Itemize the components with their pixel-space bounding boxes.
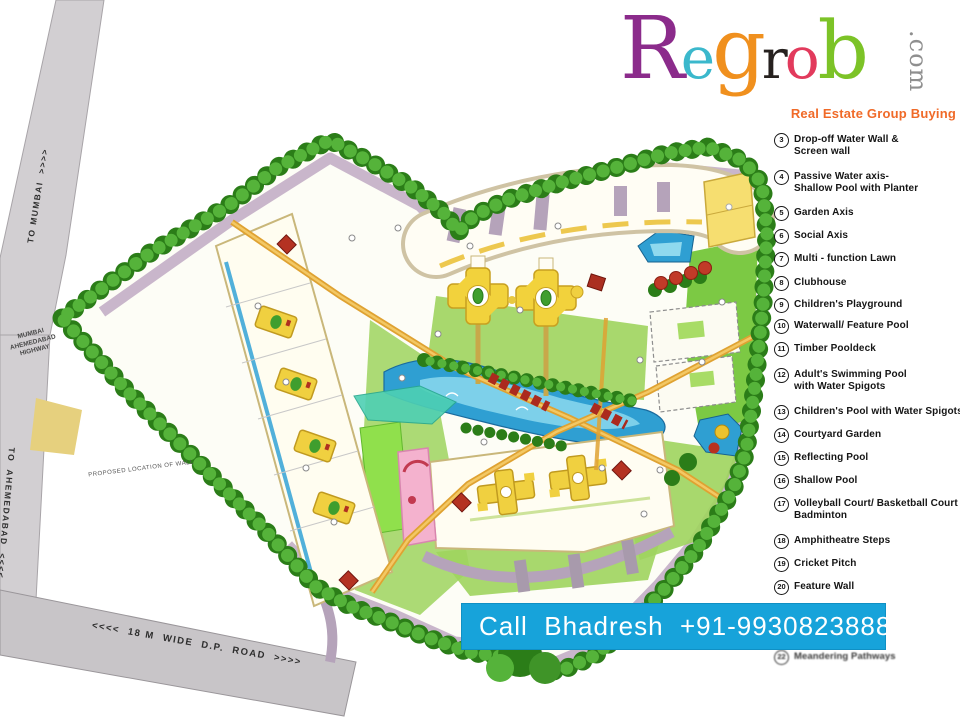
legend-number-badge: 9: [774, 298, 789, 313]
logo-letter: o: [785, 29, 820, 87]
legend-number-badge: 5: [774, 206, 789, 221]
legend-number-badge: 4: [774, 170, 789, 185]
legend-label: Volleyball Court/ Basketball Court / Bad…: [794, 498, 960, 522]
legend-item: 9Children's Playground: [774, 298, 960, 313]
legend-label: Waterwall/ Feature Pool: [794, 320, 909, 332]
logo-letter: b: [818, 11, 869, 91]
legend-item-partial: 22Meandering Pathways: [774, 650, 960, 665]
legend-label: Children's Playground: [794, 299, 902, 311]
legend-item: 18Amphitheatre Steps: [774, 534, 960, 549]
legend-item: 5Garden Axis: [774, 206, 960, 221]
legend-label: Timber Pooldeck: [794, 343, 876, 355]
legend-number-badge: 7: [774, 252, 789, 267]
legend-item: 4Passive Water axis- Shallow Pool with P…: [774, 170, 960, 195]
legend-label: Shallow Pool: [794, 475, 857, 487]
legend-label: Children's Pool with Water Spigots: [794, 406, 960, 418]
legend-label: Cricket Pitch: [794, 558, 856, 570]
legend-label: Multi - function Lawn: [794, 253, 896, 265]
legend-number-badge: 20: [774, 580, 789, 595]
legend-item: 15Reflecting Pool: [774, 451, 960, 466]
legend-number-badge: 14: [774, 428, 789, 443]
legend-label: Passive Water axis- Shallow Pool with Pl…: [794, 171, 918, 195]
contact-banner[interactable]: Call Bhadresh +91-9930823888: [461, 603, 886, 650]
legend-number-badge: 3: [774, 133, 789, 148]
legend-number-badge: 13: [774, 405, 789, 420]
logo-letter: R: [620, 6, 685, 92]
legend-number-badge: 15: [774, 451, 789, 466]
legend-item: 10Waterwall/ Feature Pool: [774, 319, 960, 334]
legend-number-badge: 19: [774, 557, 789, 572]
legend-label: Meandering Pathways: [794, 651, 896, 663]
brand-logo: R e g r o b: [620, 6, 938, 110]
flyer-canvas: TO MUMBAI >>>> MUMBAI AHEMEDABAD HIGHWAY…: [0, 0, 960, 720]
legend-label: Social Axis: [794, 230, 848, 242]
legend-number-badge: 6: [774, 229, 789, 244]
legend-item: 20Feature Wall: [774, 580, 960, 595]
logo-letter: g: [712, 7, 766, 91]
legend-item: 3Drop-off Water Wall & Screen wall: [774, 133, 960, 158]
legend-item: 13Children's Pool with Water Spigots: [774, 405, 960, 420]
legend-label: Adult's Swimming Pool with Water Spigots: [794, 369, 907, 393]
legend-number-badge: 22: [774, 650, 789, 665]
legend-label: Clubhouse: [794, 277, 847, 289]
dp-road: [0, 590, 356, 716]
legend-number-badge: 8: [774, 276, 789, 291]
legend-item: 6Social Axis: [774, 229, 960, 244]
entrance-patch: [30, 398, 82, 455]
logo-letter: e: [681, 29, 715, 87]
legend-item: 16Shallow Pool: [774, 474, 960, 489]
legend-label: Courtyard Garden: [794, 429, 881, 441]
legend-number-badge: 12: [774, 368, 789, 383]
logo-tagline: Real Estate Group Buying: [788, 106, 956, 121]
legend-item: 14Courtyard Garden: [774, 428, 960, 443]
contact-phone-text: Call Bhadresh +91-9930823888: [462, 604, 885, 648]
legend-number-badge: 17: [774, 497, 789, 512]
legend-item: 19Cricket Pitch: [774, 557, 960, 572]
legend-number-badge: 18: [774, 534, 789, 549]
legend-label: Drop-off Water Wall & Screen wall: [794, 134, 899, 158]
legend-number-badge: 11: [774, 342, 789, 357]
legend-item: 7Multi - function Lawn: [774, 252, 960, 267]
legend-item: 8Clubhouse: [774, 276, 960, 291]
legend-item: 12Adult's Swimming Pool with Water Spigo…: [774, 368, 960, 393]
logo-domain-suffix: .com: [904, 30, 932, 92]
legend-number-badge: 10: [774, 319, 789, 334]
legend-label: Reflecting Pool: [794, 452, 868, 464]
legend-number-badge: 16: [774, 474, 789, 489]
legend-label: Feature Wall: [794, 581, 854, 593]
legend-label: Garden Axis: [794, 207, 854, 219]
legend-item: 11Timber Pooldeck: [774, 342, 960, 357]
legend-label: Amphitheatre Steps: [794, 535, 890, 547]
legend-item: 17Volleyball Court/ Basketball Court / B…: [774, 497, 960, 522]
